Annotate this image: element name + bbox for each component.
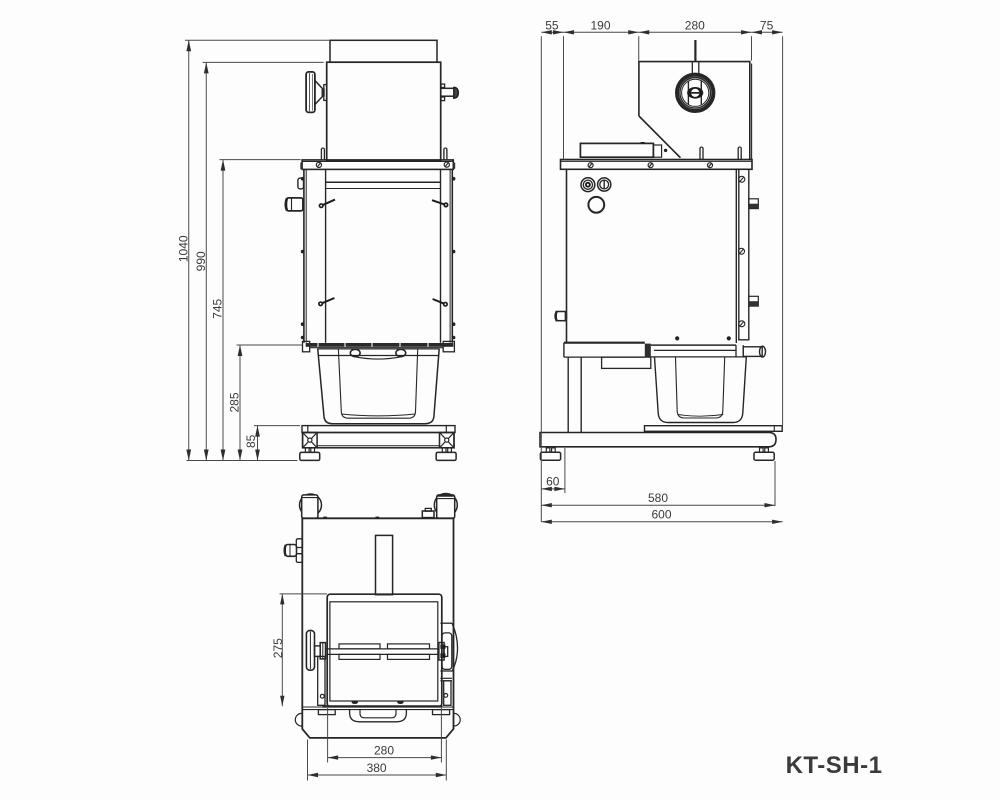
svg-text:990: 990 <box>194 251 208 271</box>
svg-text:600: 600 <box>651 508 671 522</box>
svg-text:190: 190 <box>590 18 610 32</box>
svg-text:60: 60 <box>546 475 560 489</box>
svg-text:1040: 1040 <box>177 235 191 262</box>
svg-text:745: 745 <box>211 298 225 318</box>
svg-text:380: 380 <box>367 761 387 775</box>
svg-text:KT-SH-1: KT-SH-1 <box>786 752 883 779</box>
svg-text:75: 75 <box>760 18 774 32</box>
svg-text:275: 275 <box>271 638 285 658</box>
svg-text:580: 580 <box>648 491 668 505</box>
svg-text:85: 85 <box>244 434 258 448</box>
svg-text:280: 280 <box>685 18 705 32</box>
svg-text:285: 285 <box>227 392 241 412</box>
svg-text:55: 55 <box>545 18 559 32</box>
svg-text:280: 280 <box>374 743 394 757</box>
